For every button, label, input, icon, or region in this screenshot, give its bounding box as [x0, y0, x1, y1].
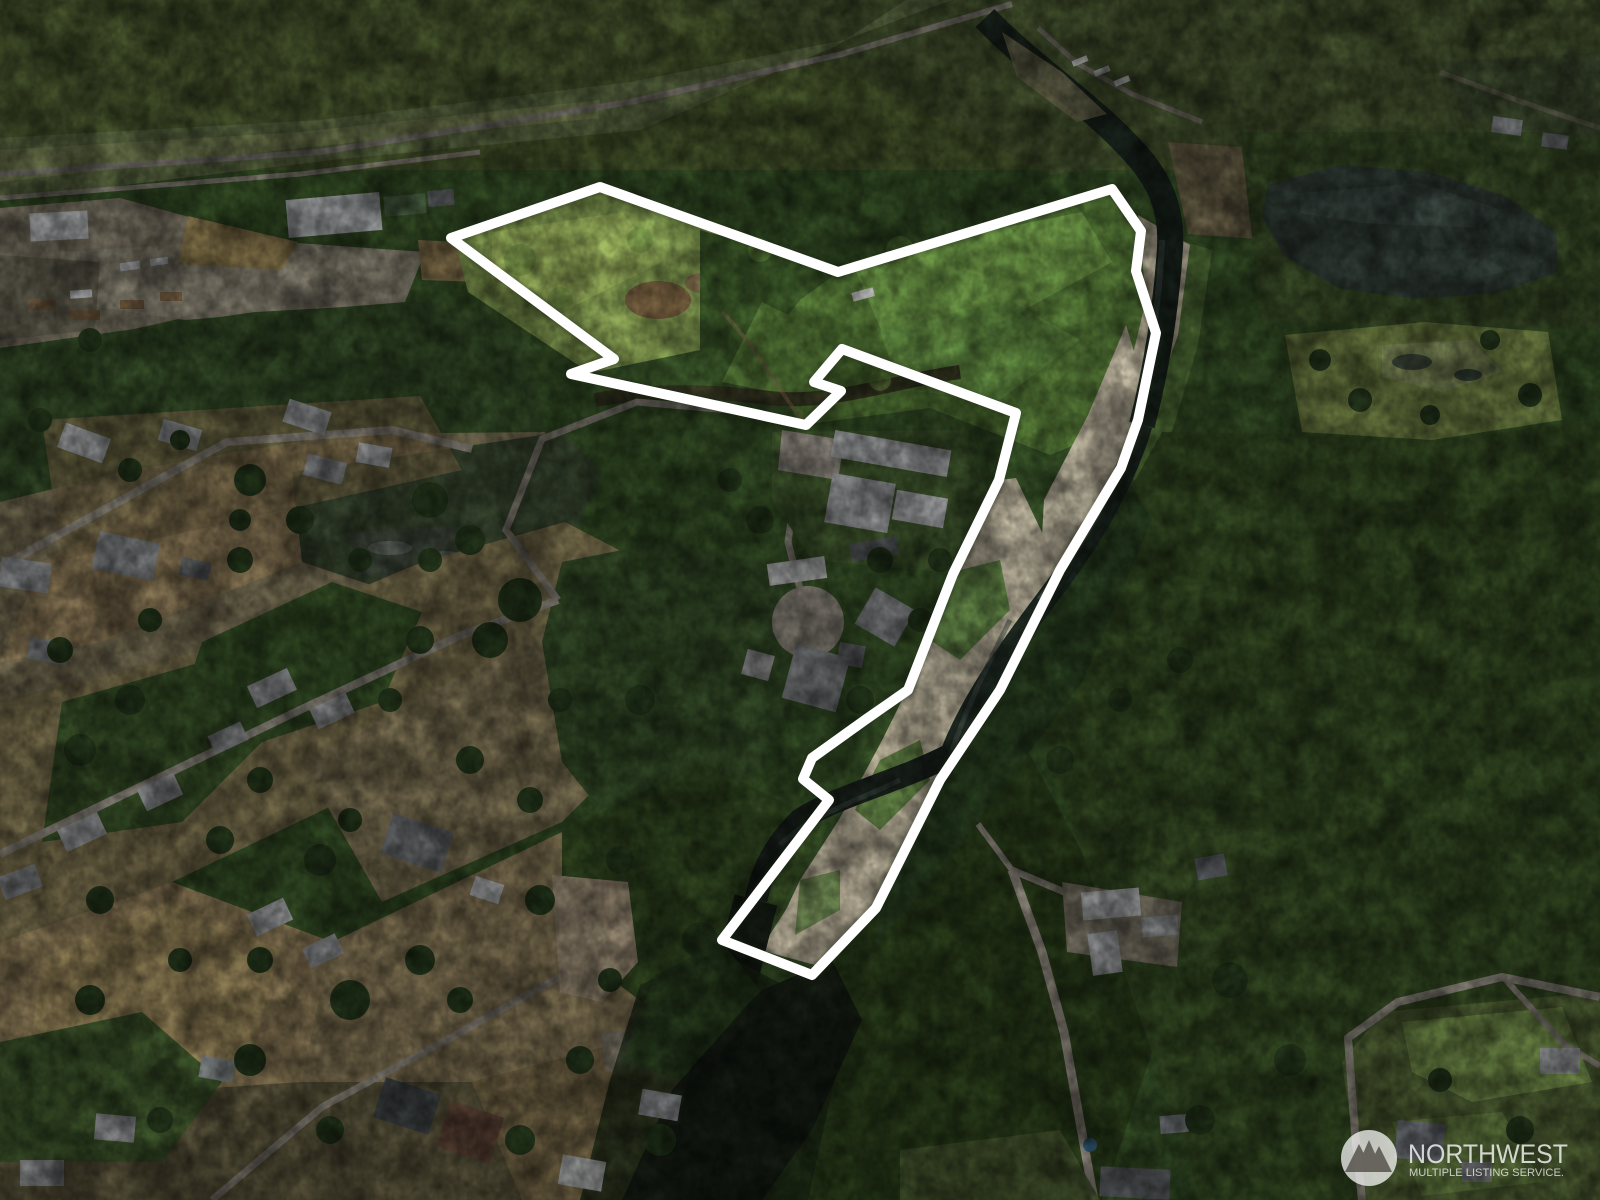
svg-text:NORTHWEST: NORTHWEST: [1408, 1139, 1568, 1169]
svg-text:MULTIPLE LISTING SERVICE.: MULTIPLE LISTING SERVICE.: [1409, 1167, 1564, 1179]
